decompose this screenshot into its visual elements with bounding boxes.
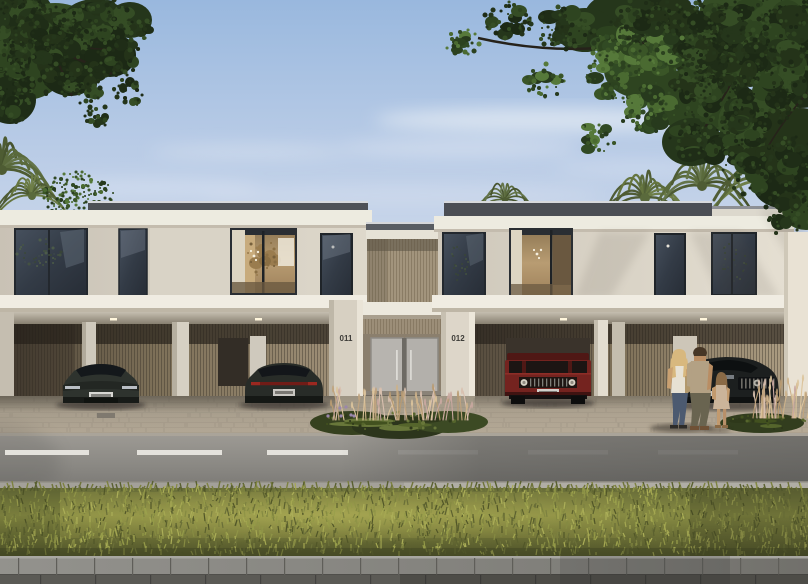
- svg-text:012: 012: [451, 334, 465, 343]
- svg-text:011: 011: [340, 334, 353, 343]
